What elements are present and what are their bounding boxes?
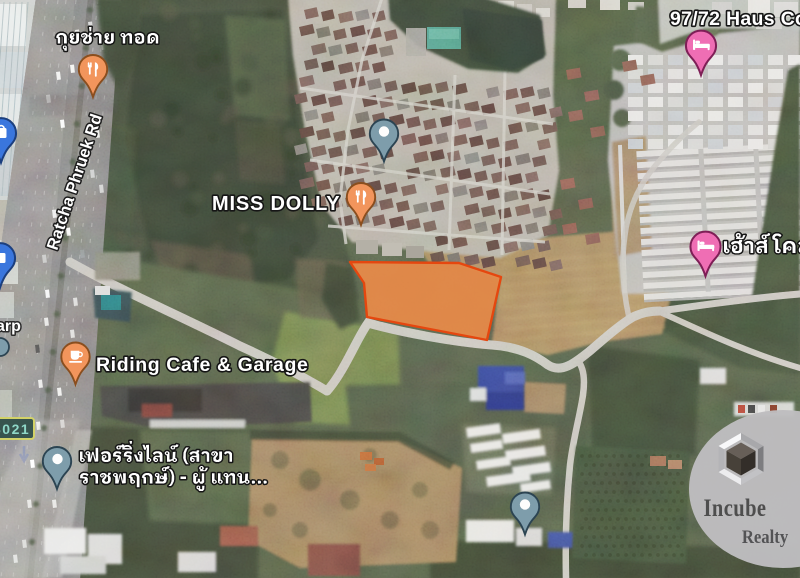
svg-text:Incube: Incube: [704, 494, 767, 521]
svg-text:Realty: Realty: [742, 526, 788, 547]
svg-text:arp: arp: [0, 318, 21, 335]
svg-text:Riding Cafe & Garage: Riding Cafe & Garage: [96, 354, 308, 376]
svg-text:97/72 Haus Co: 97/72 Haus Co: [670, 8, 800, 30]
svg-text:MISS DOLLY: MISS DOLLY: [212, 193, 340, 215]
svg-text:3021: 3021: [0, 421, 30, 437]
